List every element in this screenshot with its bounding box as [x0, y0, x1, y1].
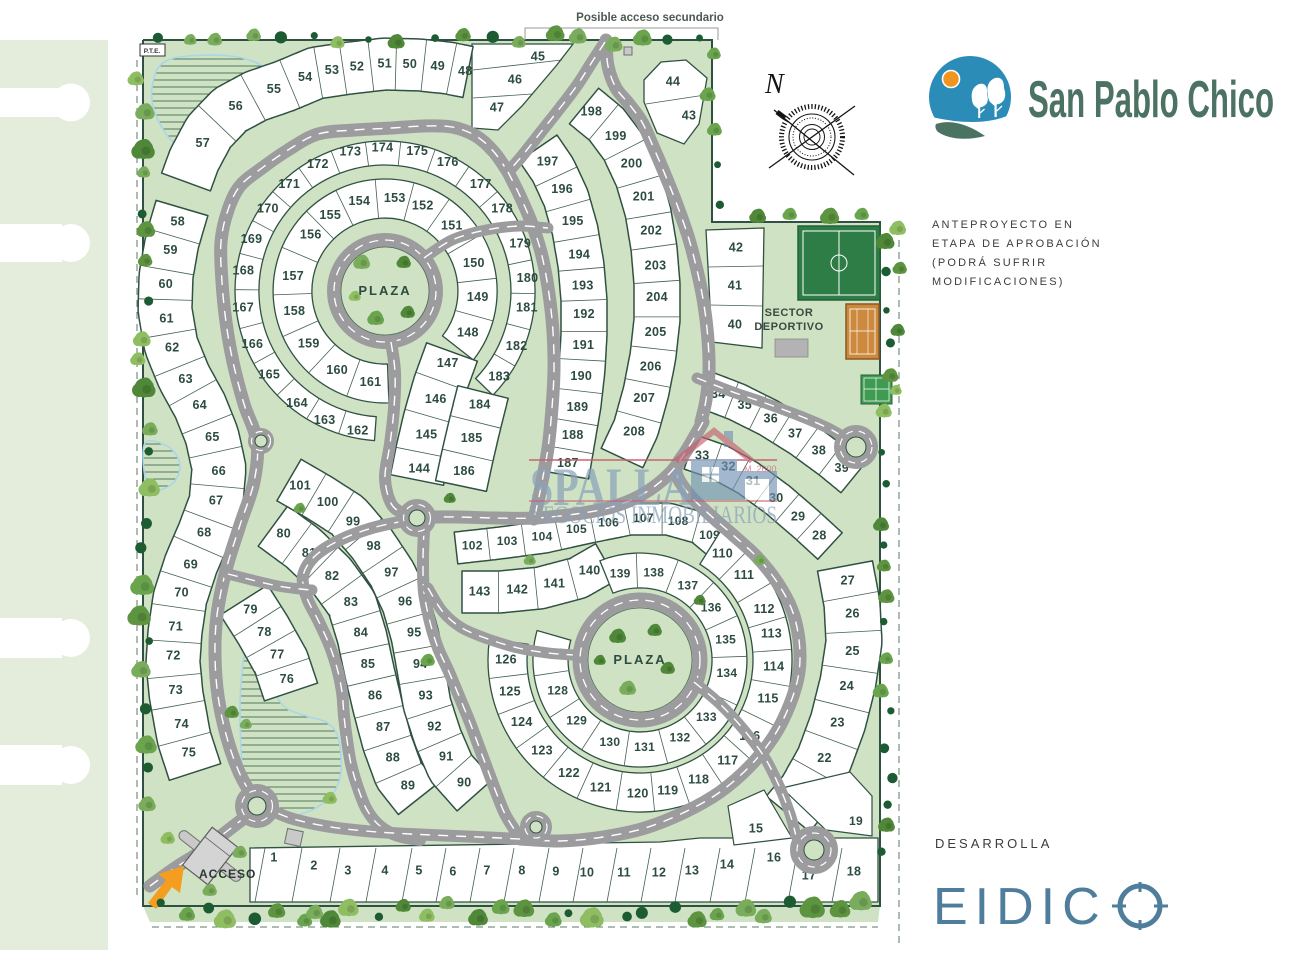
svg-text:152: 152: [412, 198, 434, 212]
svg-text:194: 194: [568, 247, 590, 261]
svg-text:146: 146: [425, 392, 447, 406]
svg-text:90: 90: [457, 775, 472, 789]
svg-text:166: 166: [242, 337, 264, 351]
svg-text:18: 18: [847, 864, 862, 878]
svg-text:65: 65: [205, 430, 220, 444]
svg-text:79: 79: [243, 603, 258, 617]
svg-text:118: 118: [688, 773, 709, 787]
svg-text:55: 55: [267, 82, 282, 96]
svg-text:45: 45: [531, 49, 546, 63]
svg-text:147: 147: [437, 356, 459, 370]
svg-text:144: 144: [408, 461, 430, 475]
svg-text:85: 85: [361, 657, 376, 671]
svg-text:121: 121: [590, 780, 612, 794]
svg-text:132: 132: [670, 731, 691, 745]
svg-text:164: 164: [286, 396, 308, 410]
svg-text:204: 204: [646, 290, 668, 304]
svg-text:110: 110: [712, 547, 733, 561]
svg-text:2: 2: [310, 858, 317, 872]
svg-text:7: 7: [483, 863, 490, 877]
svg-text:8: 8: [518, 863, 525, 877]
svg-text:174: 174: [372, 140, 394, 154]
svg-text:201: 201: [633, 189, 655, 203]
svg-text:88: 88: [386, 751, 401, 765]
svg-text:43: 43: [682, 108, 697, 122]
svg-text:SECTOR: SECTOR: [765, 307, 814, 319]
svg-text:156: 156: [300, 227, 322, 241]
svg-text:DEPORTIVO: DEPORTIVO: [754, 321, 823, 333]
svg-text:104: 104: [532, 530, 553, 544]
svg-text:155: 155: [319, 208, 341, 222]
svg-text:59: 59: [163, 243, 178, 257]
svg-text:102: 102: [462, 538, 483, 552]
svg-text:42: 42: [729, 240, 744, 254]
svg-text:75: 75: [182, 746, 197, 760]
svg-text:186: 186: [453, 464, 475, 478]
svg-text:122: 122: [558, 766, 580, 780]
svg-text:203: 203: [645, 258, 667, 272]
svg-text:145: 145: [416, 427, 438, 441]
svg-text:6: 6: [449, 864, 456, 878]
svg-text:64: 64: [193, 398, 208, 412]
svg-text:159: 159: [298, 337, 320, 351]
svg-text:53: 53: [325, 63, 340, 77]
svg-text:16: 16: [767, 850, 782, 864]
svg-text:ACCESO: ACCESO: [199, 867, 256, 881]
svg-text:12: 12: [652, 865, 667, 879]
svg-text:73: 73: [168, 683, 183, 697]
svg-text:149: 149: [467, 290, 489, 304]
svg-text:EIDIC: EIDIC: [933, 878, 1107, 936]
svg-text:141: 141: [544, 576, 566, 590]
svg-text:Posible acceso secundario: Posible acceso secundario: [576, 12, 724, 24]
svg-text:175: 175: [406, 144, 428, 158]
svg-text:137: 137: [677, 578, 698, 592]
svg-text:82: 82: [325, 569, 340, 583]
svg-text:134: 134: [716, 666, 737, 680]
svg-text:181: 181: [516, 301, 538, 315]
svg-text:91: 91: [439, 749, 454, 763]
svg-text:9: 9: [552, 864, 559, 878]
svg-text:27: 27: [841, 574, 856, 588]
svg-text:133: 133: [696, 710, 717, 724]
svg-text:167: 167: [232, 301, 254, 315]
svg-text:44: 44: [666, 74, 681, 88]
svg-text:157: 157: [282, 269, 304, 283]
svg-text:3: 3: [344, 863, 351, 877]
svg-text:103: 103: [497, 534, 518, 548]
svg-text:71: 71: [168, 619, 183, 633]
svg-text:47: 47: [490, 100, 505, 114]
svg-text:114: 114: [763, 659, 784, 673]
svg-text:66: 66: [211, 464, 226, 478]
svg-text:158: 158: [284, 304, 306, 318]
svg-text:191: 191: [573, 338, 595, 352]
svg-text:49: 49: [430, 59, 445, 73]
svg-text:92: 92: [427, 719, 442, 733]
svg-text:143: 143: [469, 584, 491, 598]
svg-text:178: 178: [491, 201, 513, 215]
svg-text:182: 182: [506, 339, 528, 353]
svg-text:202: 202: [640, 224, 662, 238]
svg-text:78: 78: [257, 625, 272, 639]
svg-text:54: 54: [298, 70, 313, 84]
svg-text:188: 188: [562, 428, 584, 442]
svg-text:131: 131: [634, 740, 655, 754]
svg-text:180: 180: [517, 271, 539, 285]
svg-text:140: 140: [579, 564, 601, 578]
svg-text:112: 112: [754, 602, 775, 616]
svg-text:199: 199: [605, 129, 627, 143]
svg-text:179: 179: [509, 237, 531, 251]
svg-text:138: 138: [643, 565, 664, 579]
svg-text:NEGOCIOS INMOBILIARIOS: NEGOCIOS INMOBILIARIOS: [529, 502, 777, 529]
svg-text:10: 10: [580, 865, 595, 879]
svg-text:172: 172: [307, 157, 329, 171]
svg-text:63: 63: [178, 372, 193, 386]
svg-text:148: 148: [457, 325, 479, 339]
svg-text:52: 52: [350, 59, 365, 73]
svg-text:13: 13: [685, 863, 700, 877]
svg-text:150: 150: [463, 256, 485, 270]
svg-text:151: 151: [441, 219, 463, 233]
svg-text:5: 5: [415, 863, 422, 877]
svg-text:120: 120: [627, 786, 649, 800]
svg-text:198: 198: [581, 104, 603, 118]
svg-text:200: 200: [621, 157, 643, 171]
svg-text:84: 84: [354, 626, 369, 640]
svg-text:189: 189: [567, 400, 589, 414]
svg-text:72: 72: [166, 649, 181, 663]
svg-text:74: 74: [174, 717, 189, 731]
svg-text:PLAZA: PLAZA: [613, 652, 666, 667]
svg-text:86: 86: [368, 689, 383, 703]
svg-text:58: 58: [171, 214, 186, 228]
svg-text:50: 50: [403, 57, 418, 71]
svg-text:48: 48: [458, 64, 473, 78]
svg-text:38: 38: [812, 443, 827, 457]
svg-text:22: 22: [817, 751, 832, 765]
svg-text:MODIFICACIONES): MODIFICACIONES): [932, 276, 1065, 288]
svg-text:41: 41: [728, 278, 743, 292]
svg-text:117: 117: [717, 753, 738, 767]
svg-text:37: 37: [788, 427, 803, 441]
svg-text:77: 77: [270, 648, 285, 662]
svg-text:170: 170: [257, 201, 279, 215]
svg-text:111: 111: [734, 568, 754, 582]
svg-text:89: 89: [401, 779, 416, 793]
svg-text:100: 100: [317, 495, 339, 509]
svg-text:113: 113: [761, 627, 782, 641]
svg-text:24: 24: [840, 679, 855, 693]
svg-text:206: 206: [640, 360, 662, 374]
svg-text:M. 2600: M. 2600: [744, 464, 777, 474]
svg-text:62: 62: [165, 340, 180, 354]
svg-text:25: 25: [845, 644, 860, 658]
svg-text:(PODRÁ SUFRIR: (PODRÁ SUFRIR: [932, 256, 1047, 269]
svg-text:57: 57: [195, 136, 210, 150]
svg-text:205: 205: [645, 325, 667, 339]
svg-text:11: 11: [617, 865, 631, 879]
svg-text:36: 36: [763, 411, 778, 425]
svg-text:124: 124: [511, 715, 533, 729]
svg-text:192: 192: [573, 307, 595, 321]
svg-text:76: 76: [280, 672, 295, 686]
svg-text:128: 128: [547, 684, 568, 698]
svg-text:123: 123: [531, 744, 553, 758]
svg-text:183: 183: [488, 369, 510, 383]
svg-text:185: 185: [461, 431, 483, 445]
svg-text:40: 40: [728, 317, 743, 331]
svg-text:70: 70: [174, 585, 189, 599]
svg-text:115: 115: [758, 691, 779, 705]
svg-text:29: 29: [791, 509, 806, 523]
svg-text:23: 23: [830, 716, 845, 730]
svg-text:197: 197: [537, 154, 559, 168]
svg-text:96: 96: [398, 595, 413, 609]
svg-text:173: 173: [340, 144, 362, 158]
svg-text:139: 139: [610, 566, 631, 580]
svg-text:153: 153: [384, 191, 406, 205]
svg-text:ANTEPROYECTO EN: ANTEPROYECTO EN: [932, 219, 1074, 231]
svg-text:19: 19: [849, 814, 863, 828]
svg-text:135: 135: [715, 632, 736, 646]
svg-text:87: 87: [376, 720, 391, 734]
svg-text:125: 125: [499, 685, 521, 699]
svg-text:168: 168: [233, 263, 255, 277]
svg-text:61: 61: [159, 311, 174, 325]
svg-text:195: 195: [562, 214, 584, 228]
svg-text:51: 51: [377, 56, 392, 70]
svg-text:56: 56: [229, 99, 244, 113]
svg-text:PLAZA: PLAZA: [358, 283, 411, 298]
svg-text:15: 15: [749, 821, 764, 835]
svg-text:93: 93: [418, 689, 433, 703]
svg-text:60: 60: [158, 277, 173, 291]
svg-text:119: 119: [657, 783, 678, 797]
svg-text:160: 160: [326, 363, 348, 377]
svg-text:130: 130: [599, 735, 620, 749]
svg-text:68: 68: [197, 526, 212, 540]
svg-text:208: 208: [623, 424, 645, 438]
svg-text:14: 14: [720, 857, 735, 871]
svg-text:177: 177: [470, 177, 492, 191]
svg-text:P.T.E.: P.T.E.: [144, 48, 161, 55]
svg-text:207: 207: [633, 391, 655, 405]
svg-text:DESARROLLA: DESARROLLA: [935, 836, 1052, 851]
svg-text:26: 26: [845, 606, 860, 620]
svg-text:190: 190: [570, 369, 592, 383]
svg-text:28: 28: [812, 529, 827, 543]
svg-text:46: 46: [508, 72, 523, 86]
svg-text:163: 163: [314, 413, 336, 427]
svg-text:83: 83: [344, 595, 359, 609]
svg-text:142: 142: [506, 583, 528, 597]
svg-text:176: 176: [437, 155, 459, 169]
svg-text:129: 129: [566, 713, 587, 727]
svg-text:98: 98: [366, 539, 381, 553]
svg-text:169: 169: [241, 232, 263, 246]
svg-text:193: 193: [572, 278, 594, 292]
svg-text:154: 154: [349, 194, 371, 208]
svg-text:1: 1: [270, 850, 277, 864]
svg-text:196: 196: [551, 182, 573, 196]
svg-text:126: 126: [495, 652, 517, 666]
svg-text:184: 184: [469, 398, 491, 412]
svg-text:97: 97: [384, 566, 399, 580]
svg-text:80: 80: [277, 526, 292, 540]
svg-text:4: 4: [381, 863, 388, 877]
svg-text:67: 67: [209, 493, 224, 507]
svg-text:69: 69: [183, 557, 198, 571]
svg-text:101: 101: [289, 479, 311, 493]
svg-text:N: N: [764, 69, 785, 100]
svg-text:171: 171: [278, 177, 300, 191]
svg-text:San Pablo Chico: San Pablo Chico: [1028, 71, 1274, 129]
svg-text:161: 161: [360, 375, 382, 389]
svg-text:162: 162: [347, 424, 369, 438]
svg-text:95: 95: [407, 625, 422, 639]
svg-text:ETAPA DE APROBACIÓN: ETAPA DE APROBACIÓN: [932, 237, 1102, 250]
svg-text:165: 165: [258, 367, 280, 381]
